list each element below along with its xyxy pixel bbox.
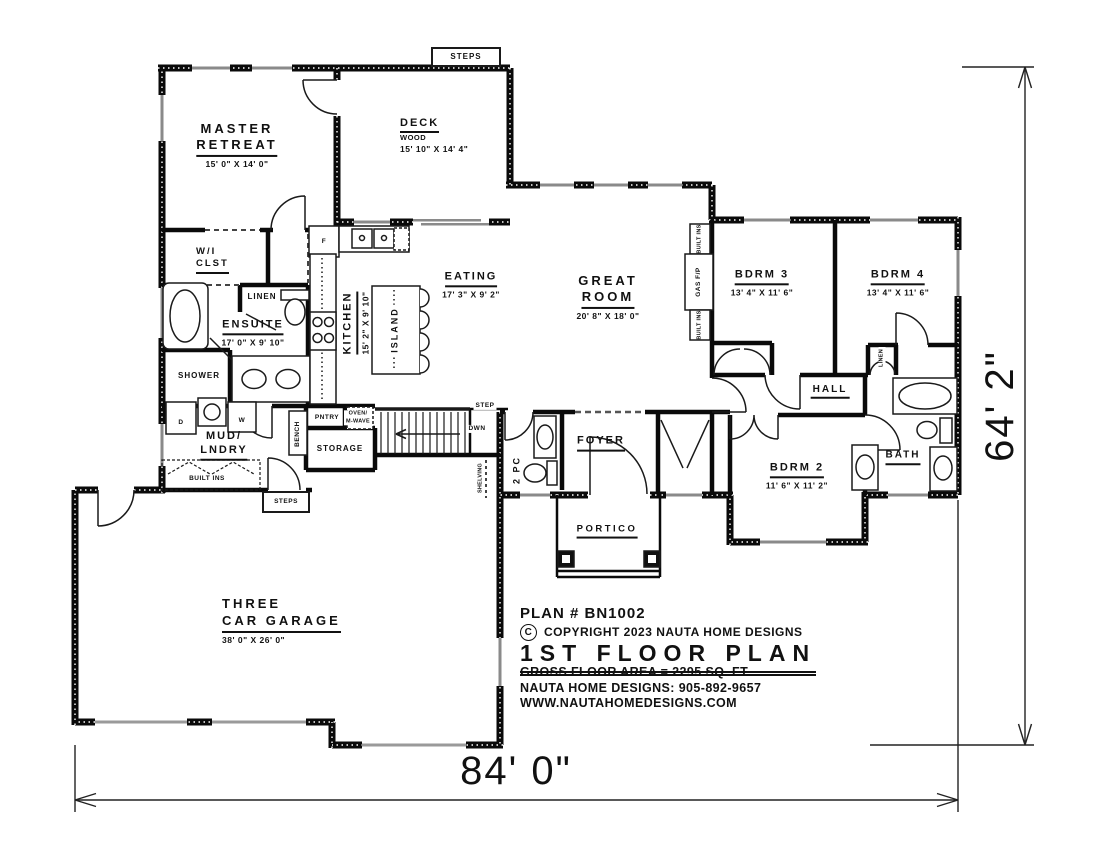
- dryer-label: D: [178, 419, 183, 427]
- garage-steps-label: STEPS: [274, 498, 298, 506]
- pantry-label: PNTRY: [315, 414, 339, 422]
- room-label-great-room: GREAT ROOM 20' 8" X 18' 0": [576, 273, 639, 321]
- room-label-ensuite: ENSUITE 17' 0" X 9' 10": [221, 318, 284, 347]
- room-label-deck: DECK WOOD 15' 10" X 14' 4": [400, 116, 468, 155]
- hall-linen-label: LINEN: [879, 347, 886, 369]
- room-label-master-retreat: MASTER RETREAT 15' 0" X 14' 0": [196, 121, 277, 169]
- bench-label: BENCH: [294, 419, 302, 449]
- room-label-eating: EATING 17' 3" X 9' 2": [442, 270, 500, 299]
- stairs: [375, 409, 470, 454]
- fridge-label: F: [322, 238, 326, 246]
- phone-line: NAUTA HOME DESIGNS: 905-892-9657: [520, 680, 761, 696]
- island-label: ISLAND: [389, 305, 400, 355]
- room-label-mud-lndry: MUD/ LNDRY: [200, 430, 247, 461]
- hall-label: HALL: [811, 384, 850, 399]
- plan-number: PLAN # BN1002: [520, 604, 646, 624]
- washer-label: W: [237, 417, 248, 425]
- two-pc-label: 2 PC: [511, 454, 522, 486]
- built-ins-lower-label: BUILT INS: [697, 310, 704, 339]
- room-label-bdrm4: BDRM 4 13' 4" X 11' 6": [867, 268, 930, 297]
- shower-label: SHOWER: [178, 371, 220, 381]
- built-ins-mud-label: BUILT INS: [187, 475, 227, 483]
- foyer-label: FOYER: [577, 435, 625, 452]
- room-label-bdrm3: BDRM 3 13' 4" X 11' 6": [731, 268, 794, 297]
- built-ins-upper-label: BUILT INS: [697, 224, 704, 253]
- website-line: WWW.NAUTAHOMEDESIGNS.COM: [520, 695, 737, 711]
- overall-height-dimension: 64' 2": [975, 350, 1025, 462]
- floor-plan-drawing: [0, 0, 1100, 850]
- room-label-bdrm2: BDRM 2 11' 6" X 11' 2": [766, 461, 828, 490]
- gross-area-line: GROSS FLOOR AREA = 2295 SQ. FT.: [520, 664, 751, 680]
- gas-fireplace-label: GAS F/P: [695, 267, 703, 297]
- linen-closet-label: LINEN: [246, 292, 279, 302]
- room-label-wic: W/I CLST: [196, 246, 229, 274]
- floor-plan-sheet: STEPS MASTER RETREAT 15' 0" X 14' 0" DEC…: [0, 0, 1100, 850]
- storage-label: STORAGE: [317, 444, 363, 454]
- portico-label: PORTICO: [577, 524, 638, 539]
- bath-label: BATH: [885, 449, 920, 465]
- fixtures: [162, 48, 957, 567]
- room-label-garage: THREE CAR GARAGE 38' 0" X 26' 0": [222, 596, 341, 646]
- overall-width-dimension: 84' 0": [460, 746, 572, 796]
- shelving-label: SHELVING: [478, 461, 485, 495]
- deck-steps-label: STEPS: [450, 52, 481, 62]
- down-label: DWN: [466, 425, 487, 433]
- room-label-kitchen: KITCHEN 15' 2" X 9' 10": [341, 291, 370, 354]
- oven-mwave-label: OVEN/M-WAVE: [344, 410, 372, 425]
- step-label: STEP: [474, 402, 497, 410]
